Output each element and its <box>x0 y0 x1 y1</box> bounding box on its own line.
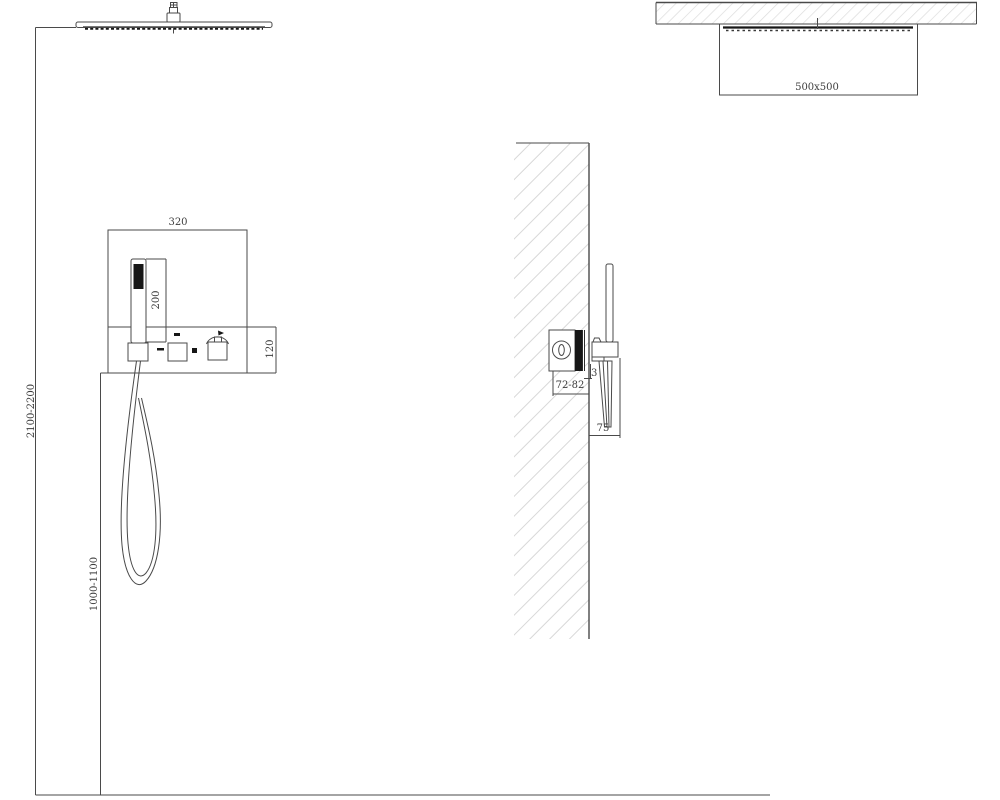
handle-upper-bar <box>606 264 613 342</box>
hand-shower-holder <box>128 343 148 361</box>
dim-label-72-82: 72-82 <box>545 380 595 392</box>
trim-panel-front <box>101 230 277 373</box>
plate-bottom-lug <box>592 357 604 361</box>
dim-label-75: 75 <box>588 423 618 435</box>
flow-indicator-mark <box>174 333 180 336</box>
dim-label-200: 200 <box>151 280 163 320</box>
handle-side <box>592 264 618 427</box>
knob-tab <box>215 337 222 342</box>
dot-mark <box>192 348 197 353</box>
dim-label-500x500: 500x500 <box>782 82 852 94</box>
shower-installation-drawing <box>0 0 1000 800</box>
minus-mark <box>157 348 164 351</box>
rain-shower-head-front <box>76 3 272 34</box>
ceiling-mount-fitting <box>167 3 180 23</box>
shower-hose <box>121 361 160 585</box>
hand-shower-spray-face <box>134 264 144 289</box>
mixer-valve-side <box>549 330 585 371</box>
side-view <box>514 3 977 640</box>
ceiling-hatch <box>656 3 977 25</box>
front-view <box>36 3 771 796</box>
ceiling-section <box>656 3 977 25</box>
handle-base-plate <box>592 342 618 357</box>
dim-label-320: 320 <box>158 217 198 229</box>
drawing-canvas: 320 200 120 2100-2200 1000-1100 500x500 … <box>0 0 1000 800</box>
dim-label-1000-1100: 1000-1100 <box>89 552 101 616</box>
plate-top-lug <box>593 338 601 342</box>
dim-label-3: 3 <box>591 368 603 380</box>
dim-label-2100-2200: 2100-2200 <box>26 379 38 443</box>
dim-label-120: 120 <box>265 329 277 369</box>
